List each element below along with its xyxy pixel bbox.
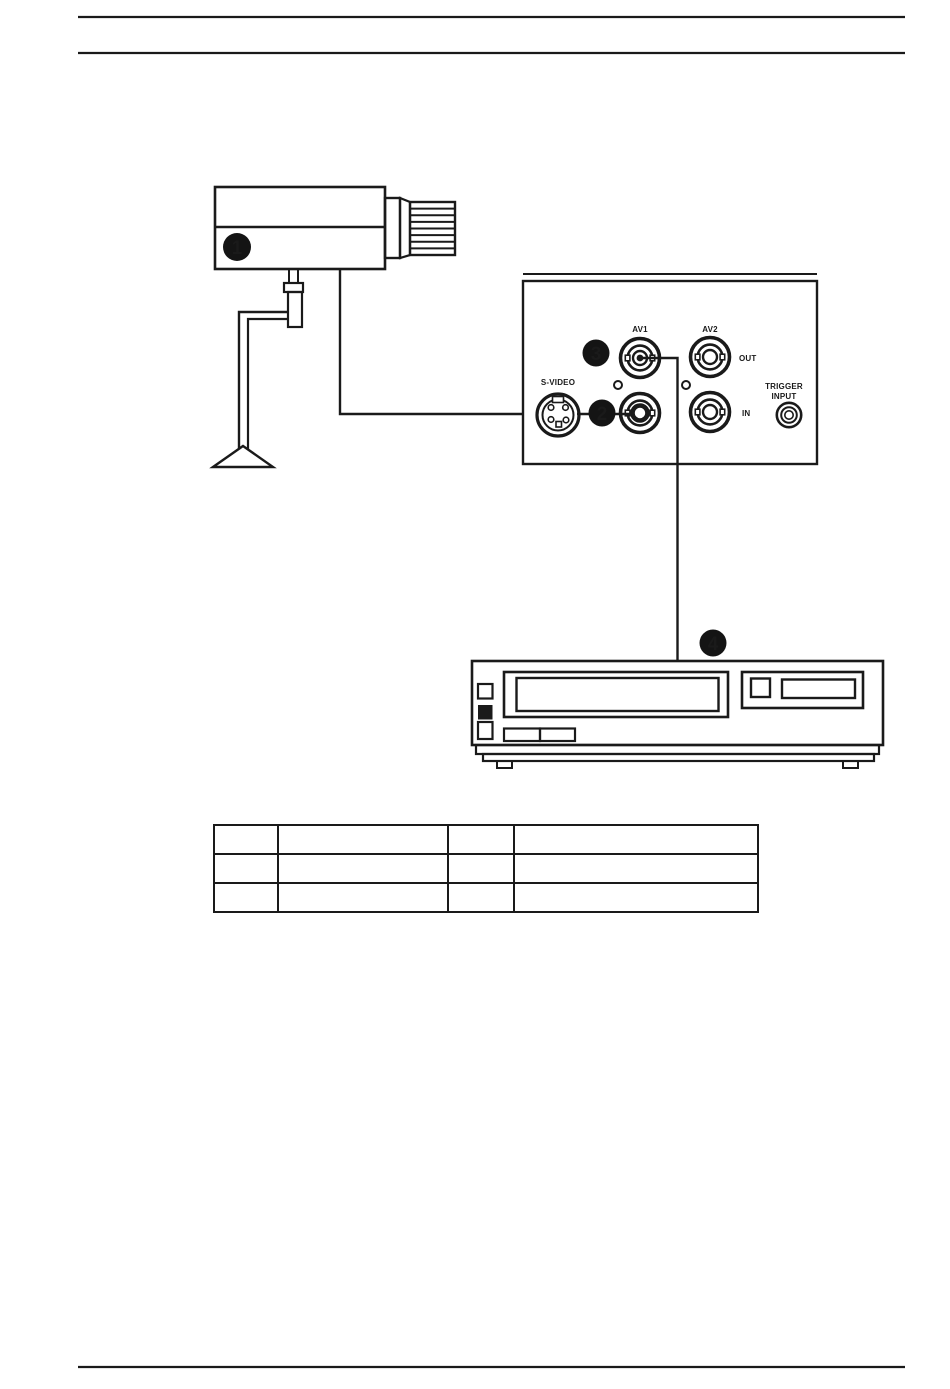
- spec-table-body: [214, 825, 758, 912]
- svideo-connector: [537, 394, 579, 436]
- table-cell: [214, 883, 278, 912]
- stand-arm-outer: [239, 312, 288, 450]
- trigger-input-label-line2: INPUT: [772, 392, 797, 401]
- trigger-input-connector: [777, 403, 801, 427]
- stand-arm-inner: [248, 319, 288, 449]
- spec-table: [213, 824, 759, 913]
- table-cell: [514, 825, 758, 854]
- callout-badge-2: 2: [589, 400, 616, 427]
- vcr-base-upper: [476, 745, 879, 754]
- stand-collar: [284, 283, 303, 292]
- manual-page: S-VIDEO AV1 AV2 OUT IN TRIGGER INPUT: [0, 0, 950, 1389]
- vcr-body: [472, 661, 883, 745]
- callout-badge-1: 1: [223, 233, 251, 261]
- connection-diagram: S-VIDEO AV1 AV2 OUT IN TRIGGER INPUT: [0, 0, 950, 1389]
- callout-number: 3: [591, 344, 602, 365]
- table-cell: [278, 883, 448, 912]
- callout-number: 2: [597, 404, 608, 425]
- table-cell: [278, 854, 448, 883]
- lens-barrel: [410, 202, 455, 255]
- svideo-bottom-notch: [556, 422, 562, 428]
- table-cell: [278, 825, 448, 854]
- svideo-label: S-VIDEO: [541, 378, 575, 387]
- av2-in-connector: [691, 393, 730, 432]
- callout-number: 4: [708, 634, 719, 655]
- trigger-input-label-line1: TRIGGER: [765, 382, 803, 391]
- camera: [215, 187, 455, 269]
- table-cell: [448, 883, 514, 912]
- av2-out-connector: [691, 338, 730, 377]
- callout-number: 1: [232, 238, 243, 259]
- out-label: OUT: [739, 354, 757, 363]
- lens-ring: [400, 198, 410, 258]
- vcr-button-middle: [478, 705, 493, 720]
- connector-panel: S-VIDEO AV1 AV2 OUT IN TRIGGER INPUT: [523, 274, 817, 464]
- table-cell: [214, 854, 278, 883]
- table-row: [214, 854, 758, 883]
- table-cell: [514, 883, 758, 912]
- table-row: [214, 825, 758, 854]
- callout-badge-4: 4: [700, 630, 727, 657]
- table-cell: [448, 854, 514, 883]
- lens-mount: [385, 198, 400, 258]
- stand-neck: [289, 269, 298, 283]
- table-row: [214, 883, 758, 912]
- camera-cable: [340, 269, 537, 414]
- vcr: [472, 661, 883, 768]
- table-cell: [514, 854, 758, 883]
- svideo-key-notch: [553, 397, 564, 403]
- panel-box: [523, 281, 817, 464]
- table-cell: [448, 825, 514, 854]
- av2-label: AV2: [702, 325, 718, 334]
- callout-badge-3: 3: [583, 340, 610, 367]
- camera-stand: [213, 269, 303, 467]
- in-label: IN: [742, 409, 750, 418]
- stand-base: [213, 446, 273, 467]
- av1-label: AV1: [632, 325, 648, 334]
- vcr-base-lower: [483, 754, 874, 761]
- table-cell: [214, 825, 278, 854]
- stand-stem: [288, 292, 302, 327]
- header-rules: [78, 17, 905, 53]
